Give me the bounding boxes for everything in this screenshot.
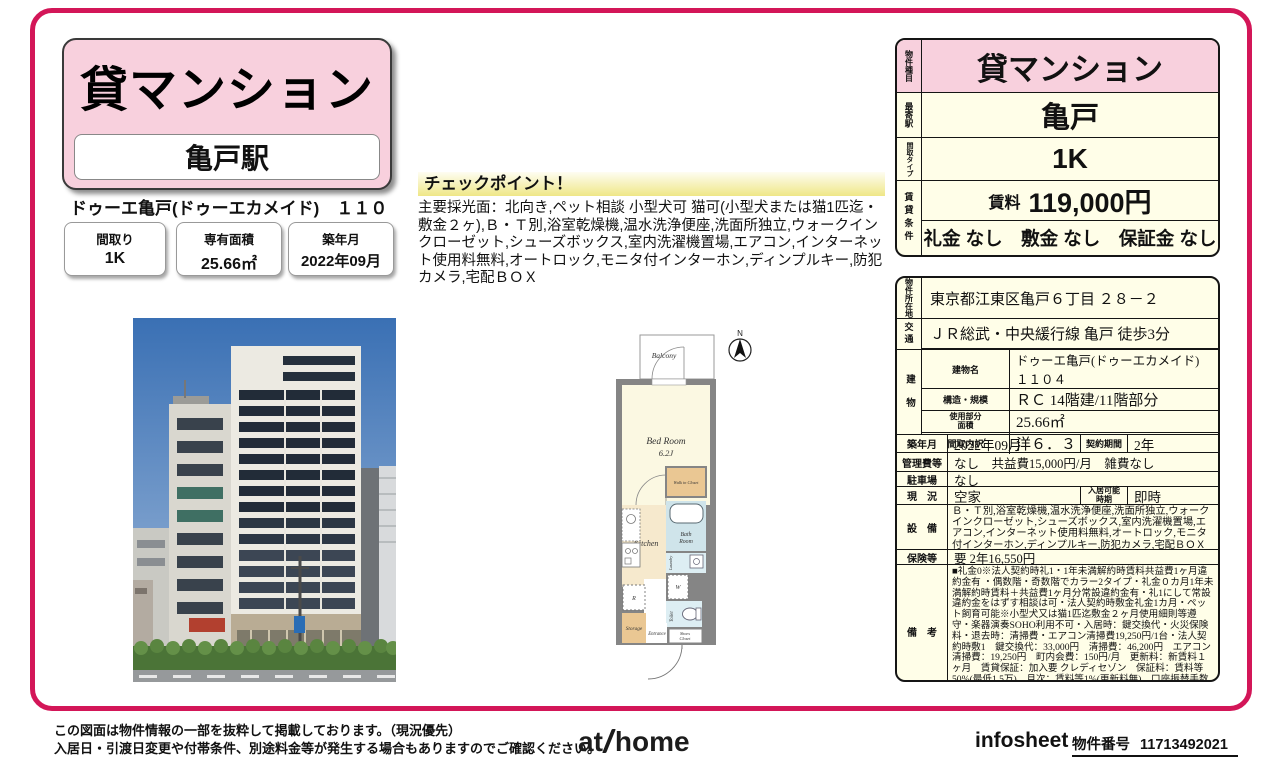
notes-label: 備 考 — [897, 565, 948, 682]
built-contract-row: 築年月 2022年09月 契約期間 2年 — [897, 434, 1218, 452]
property-type-row-label: 物件種目 — [897, 40, 922, 92]
athome-logo: at home — [578, 726, 690, 758]
insurance-value: 要 2年16,550円 — [948, 550, 1218, 564]
notes-row: 備 考 ■礼金0※法人契約時礼1・1年未満解約時賃料共益費1ヶ月違約金有 ・偶数… — [897, 564, 1218, 682]
bedroom-size-label: 6.2J — [659, 448, 675, 458]
balcony-label: Balcony — [652, 351, 677, 360]
building-group-label: 建物 — [897, 350, 922, 434]
move-in-label: 入居可能時期 — [1080, 487, 1128, 504]
station-row: 最寄駅 亀戸 — [897, 92, 1218, 137]
contract-value: 2年 — [1128, 435, 1218, 452]
summary-table: 物件種目 貸マンション 最寄駅 亀戸 間取タイプ 1K 賃貸条件 賃料 119,… — [895, 38, 1220, 257]
address-row: 物件所在地 東京都江東区亀戸６丁目 ２８－２ — [897, 278, 1218, 318]
property-type-row: 物件種目 貸マンション — [897, 40, 1218, 92]
rent-line: 賃料 119,000円 — [922, 181, 1218, 220]
property-number: 物件番号11713492021 — [1072, 733, 1238, 757]
badge-built: 築年月 2022年09月 — [288, 222, 394, 276]
parking-label: 駐車場 — [897, 472, 948, 486]
layout-row-label: 間取タイプ — [897, 138, 922, 180]
building-group-row: 建物 建物名 ドゥーエ亀戸(ドゥーエカメイド) １１０４ 構造・規模 ＲＣ 14… — [897, 349, 1218, 434]
room-walk-in-closet: Walk in Closet — [666, 467, 706, 497]
storage-label: Storage — [626, 626, 643, 632]
room-toilet: Toilet — [666, 601, 702, 627]
area-row: 使用部分面積 25.66㎡ — [922, 410, 1218, 432]
photo-illustration — [133, 318, 396, 682]
rent-value: 119,000円 — [1028, 181, 1151, 220]
equipment-value: Ｂ・Ｔ別,浴室乾燥機,温水洗浄便座,洗面所独立,ウォークインクローゼット,シュー… — [948, 505, 1218, 549]
area-value: 25.66㎡ — [1010, 411, 1218, 432]
badge-area: 専有面積 25.66㎡ — [176, 222, 282, 276]
toilet-label: Toilet — [670, 611, 675, 622]
building-name-row: 建物名 ドゥーエ亀戸(ドゥーエカメイド) １１０４ — [922, 350, 1218, 388]
property-type-title: 貸マンション — [64, 50, 390, 120]
station-name: 亀戸駅 — [74, 134, 380, 180]
athome-logo-at: at — [578, 726, 603, 758]
built-value: 2022年09月 — [948, 435, 1080, 452]
access-values: ＪＲ総武・中央緩行線 亀戸 徒歩3分 — [922, 319, 1218, 349]
badge-built-label: 築年月 — [322, 229, 360, 248]
balcony-area: Balcony — [640, 335, 714, 379]
badge-layout: 間取り 1K — [64, 222, 166, 276]
notes-value: ■礼金0※法人契約時礼1・1年未満解約時賃料共益費1ヶ月違約金有 ・偶数階・奇数… — [948, 565, 1218, 682]
property-number-value: 11713492021 — [1140, 737, 1228, 753]
checkpoint-title: チェックポイント！ — [418, 172, 885, 196]
property-type-banner: 貸マンション 亀戸駅 — [62, 38, 392, 190]
access-value: ＪＲ総武・中央緩行線 亀戸 徒歩3分 — [922, 319, 1218, 348]
checkpoint-text: 主要採光面：北向き,ペット相談 小型犬可 猫可(小型犬または猫1匹迄・敷金２ヶ)… — [418, 200, 888, 288]
structure-value: ＲＣ 14階建/11階部分 — [1010, 389, 1218, 410]
structure-label: 構造・規模 — [922, 389, 1010, 410]
management-row: 管理費等 なし 共益費15,000円/月 雑費なし — [897, 452, 1218, 471]
compass-icon: N — [729, 329, 751, 361]
detail-table: 物件所在地 東京都江東区亀戸６丁目 ２８－２ 交通 ＪＲ総武・中央緩行線 亀戸 … — [895, 276, 1220, 682]
laundry-label: Laundry — [668, 556, 673, 571]
footer-disclaimer-1: この図面は物件情報の一部を抜粋して掲載しております。（現況優先） — [54, 720, 461, 739]
status-row: 現 況 空家 入居可能時期 即時 — [897, 486, 1218, 504]
station-row-label: 最寄駅 — [897, 93, 922, 137]
equipment-row: 設 備 Ｂ・Ｔ別,浴室乾燥機,温水洗浄便座,洗面所独立,ウォークインクローゼット… — [897, 504, 1218, 549]
layout-value: 1K — [922, 138, 1218, 180]
athome-logo-slash-icon — [602, 729, 616, 753]
conditions-row: 賃貸条件 賃料 119,000円 礼金 なし 敷金 なし 保証金 なし — [897, 180, 1218, 255]
shoes-closet-label-2: Closet — [680, 636, 692, 641]
bathroom-label-1: Bath — [681, 532, 692, 538]
parking-value: なし — [948, 472, 1218, 486]
status-label: 現 況 — [897, 487, 948, 504]
management-label: 管理費等 — [897, 453, 948, 471]
walk-in-closet-label: Walk in Closet — [674, 480, 700, 485]
rent-label: 賃料 — [988, 189, 1020, 213]
floorplan: N Balcony Bed Room 6.2J — [608, 327, 792, 691]
building-name-value: ドゥーエ亀戸(ドゥーエカメイド) １１０４ — [1010, 350, 1218, 388]
room-storage: Storage — [622, 613, 646, 643]
athome-logo-home: home — [615, 726, 690, 758]
move-in-value: 即時 — [1128, 487, 1218, 504]
address-row-label: 物件所在地 — [897, 278, 922, 318]
badge-area-label: 専有面積 — [204, 229, 254, 248]
floorplan-drawing: N Balcony Bed Room 6.2J — [616, 329, 751, 679]
badge-layout-value: 1K — [105, 250, 125, 268]
address-value: 東京都江東区亀戸６丁目 ２８－２ — [922, 278, 1218, 318]
station-value: 亀戸 — [922, 93, 1218, 137]
insurance-row: 保険等 要 2年16,550円 — [897, 549, 1218, 564]
kitchen-counter-icon — [622, 509, 640, 567]
building-photo — [133, 318, 396, 682]
room-laundry: Laundry — [666, 553, 706, 573]
fridge-icon: R — [623, 585, 645, 610]
entrance-label: Entrance — [647, 632, 666, 637]
footer-disclaimer-2: 入居日・引渡日変更や付帯条件、別途料金等が発生する場合もありますのでご確認くださ… — [54, 738, 600, 757]
badge-layout-label: 間取り — [96, 229, 134, 248]
fridge-label: R — [631, 596, 636, 602]
conditions-row-label: 賃貸条件 — [897, 181, 922, 255]
compass-n-label: N — [737, 329, 743, 338]
bathroom-label-2: Room — [678, 539, 693, 545]
management-value: なし 共益費15,000円/月 雑費なし — [948, 453, 1218, 471]
infosheet-brand: infosheet — [975, 729, 1068, 753]
washer-icon: W — [668, 575, 688, 599]
status-value: 空家 — [948, 487, 1080, 504]
fees-line: 礼金 なし 敷金 なし 保証金 なし — [922, 220, 1218, 255]
room-shoes-closet: Shoes Closet — [669, 629, 702, 643]
room-bathroom: Bath Room — [666, 501, 706, 551]
property-type-value: 貸マンション — [922, 40, 1218, 92]
badge-area-value: 25.66㎡ — [201, 250, 257, 274]
structure-row: 構造・規模 ＲＣ 14階建/11階部分 — [922, 388, 1218, 410]
area-label: 使用部分面積 — [922, 411, 1010, 432]
property-number-label: 物件番号 — [1072, 737, 1130, 753]
badge-built-value: 2022年09月 — [301, 250, 381, 271]
bedroom-label: Bed Room — [646, 437, 685, 447]
building-subrows: 建物名 ドゥーエ亀戸(ドゥーエカメイド) １１０４ 構造・規模 ＲＣ 14階建/… — [922, 350, 1218, 434]
access-row: 交通 ＪＲ総武・中央緩行線 亀戸 徒歩3分 — [897, 318, 1218, 349]
contract-label: 契約期間 — [1080, 435, 1128, 452]
building-name-label: 建物名 — [922, 350, 1010, 388]
conditions-values: 賃料 119,000円 礼金 なし 敷金 なし 保証金 なし — [922, 181, 1218, 255]
access-row-label: 交通 — [897, 319, 922, 349]
equipment-label: 設 備 — [897, 505, 948, 549]
insurance-label: 保険等 — [897, 550, 948, 564]
infosheet-page: 貸マンション 亀戸駅 ドゥーエ亀戸(ドゥーエカメイド) １１０４ 間取り 1K … — [0, 0, 1280, 761]
parking-row: 駐車場 なし — [897, 471, 1218, 486]
built-label: 築年月 — [897, 435, 948, 452]
layout-row: 間取タイプ 1K — [897, 137, 1218, 180]
